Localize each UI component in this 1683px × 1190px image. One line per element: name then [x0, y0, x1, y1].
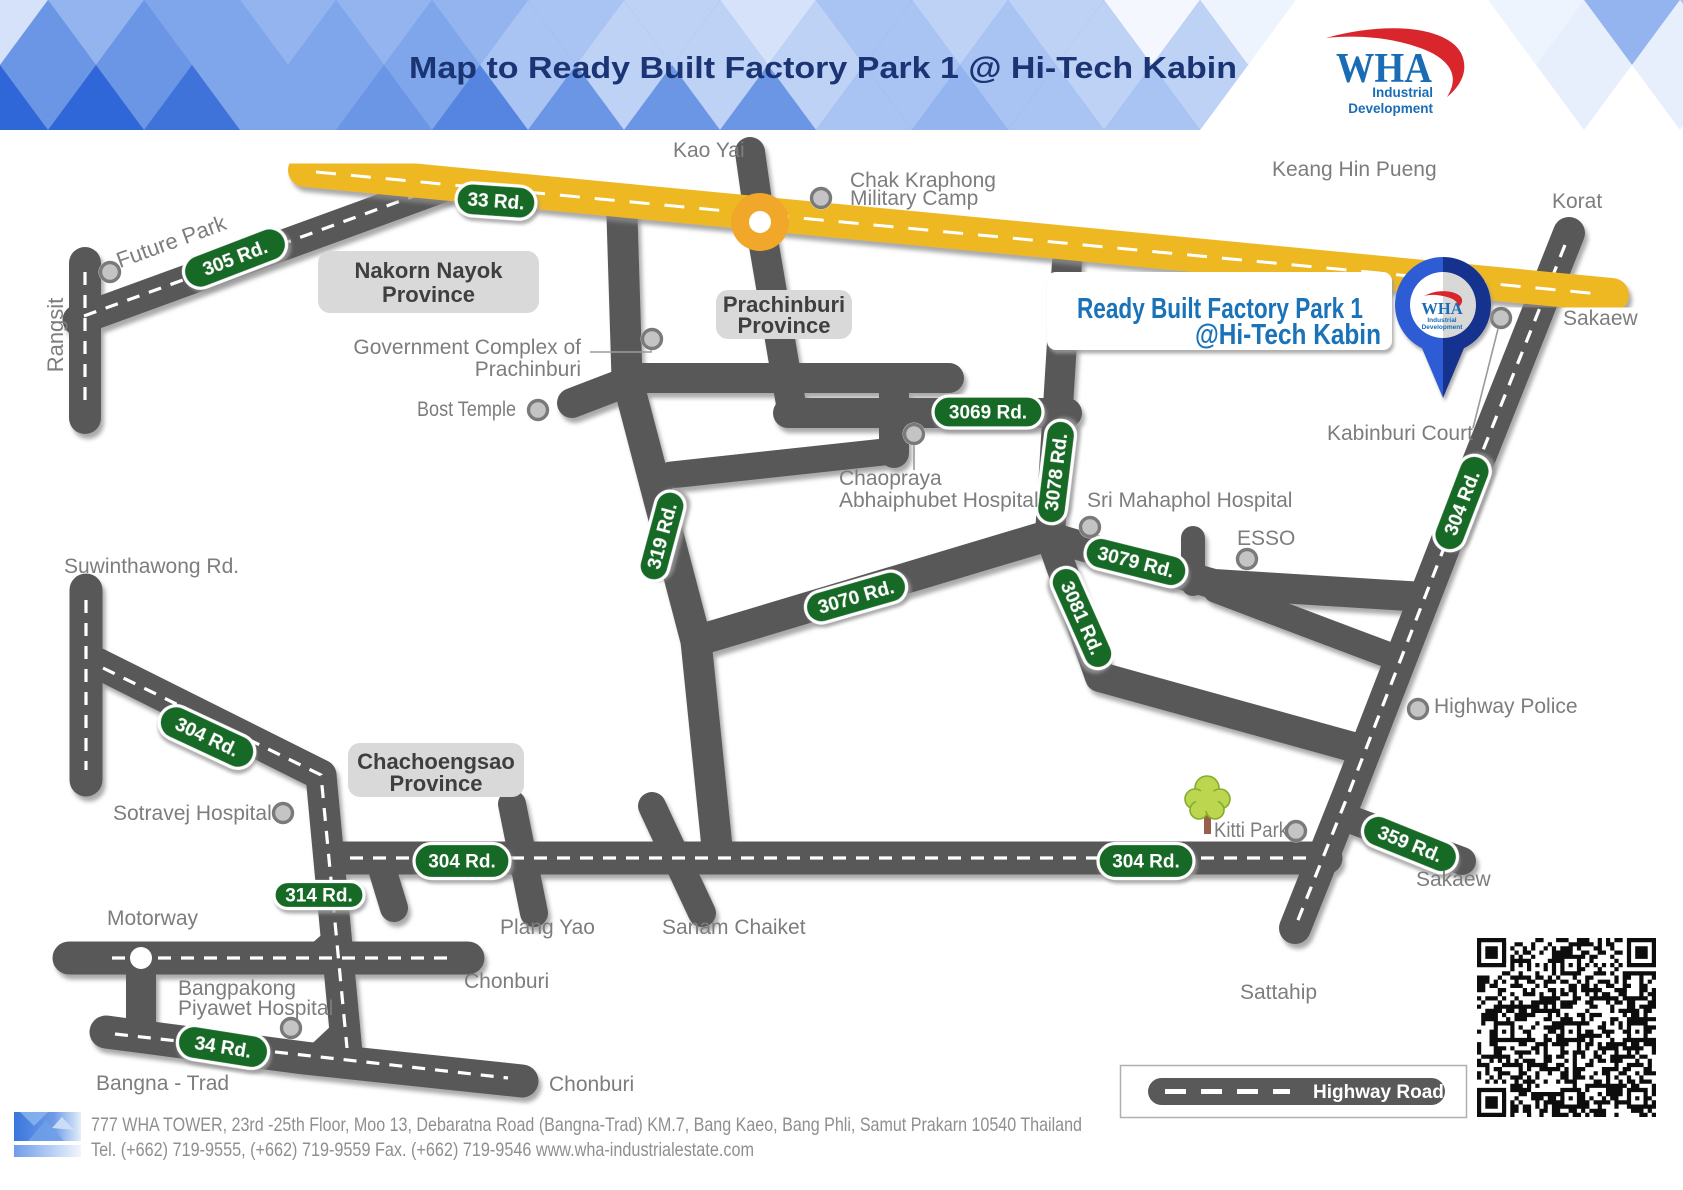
svg-text:Development: Development — [1348, 101, 1433, 116]
svg-text:Map to Ready Built Factory Par: Map to Ready Built Factory Park 1 @ Hi-T… — [409, 50, 1237, 85]
svg-text:Abhaiphubet Hospital: Abhaiphubet Hospital — [839, 489, 1039, 512]
svg-text:Kitti Park: Kitti Park — [1214, 819, 1288, 842]
svg-text:Chonburi: Chonburi — [549, 1073, 634, 1096]
svg-text:Bangna - Trad: Bangna - Trad — [96, 1072, 229, 1095]
svg-text:Highway Road: Highway Road — [1313, 1082, 1444, 1103]
svg-text:Highway Police: Highway Police — [1434, 695, 1578, 718]
svg-text:Government Complex of: Government Complex of — [353, 336, 581, 359]
svg-text:Military Camp: Military Camp — [850, 187, 978, 210]
svg-text:Sakaew: Sakaew — [1563, 307, 1639, 330]
svg-text:Rangsit: Rangsit — [43, 298, 68, 373]
svg-text:Piyawet Hospital: Piyawet Hospital — [178, 997, 333, 1020]
svg-text:Sattahip: Sattahip — [1240, 981, 1317, 1004]
svg-text:Plang Yao: Plang Yao — [500, 916, 595, 939]
svg-text:33 Rd.: 33 Rd. — [467, 190, 525, 215]
svg-text:314 Rd.: 314 Rd. — [285, 886, 353, 907]
svg-text:Sotravej Hospital: Sotravej Hospital — [113, 802, 272, 825]
svg-text:Sakaew: Sakaew — [1416, 868, 1492, 891]
svg-text:Industrial: Industrial — [1372, 85, 1433, 100]
svg-text:3069 Rd.: 3069 Rd. — [949, 403, 1027, 424]
svg-text:Chonburi: Chonburi — [464, 970, 549, 993]
svg-text:Motorway: Motorway — [107, 907, 199, 930]
svg-text:ESSO: ESSO — [1237, 527, 1295, 550]
svg-text:Province: Province — [738, 313, 831, 338]
svg-text:Prachinburi: Prachinburi — [475, 358, 581, 381]
svg-text:Development: Development — [1422, 324, 1464, 331]
svg-text:Sri Mahaphol Hospital: Sri Mahaphol Hospital — [1087, 489, 1292, 512]
svg-text:Sanam Chaiket: Sanam Chaiket — [662, 916, 806, 939]
svg-text:Suwinthawong Rd.: Suwinthawong Rd. — [64, 555, 239, 578]
svg-text:Industrial: Industrial — [1427, 317, 1456, 324]
svg-text:Korat: Korat — [1552, 190, 1602, 213]
svg-text:Nakorn Nayok: Nakorn Nayok — [355, 258, 504, 283]
svg-text:Kabinburi Court: Kabinburi Court — [1327, 422, 1473, 445]
svg-text:WHA: WHA — [1421, 299, 1462, 318]
svg-text:Tel. (+662) 719-9555, (+662) 7: Tel. (+662) 719-9555, (+662) 719-9559 Fa… — [91, 1139, 754, 1161]
svg-text:304 Rd.: 304 Rd. — [428, 852, 496, 873]
svg-text:Keang Hin Pueng: Keang Hin Pueng — [1272, 158, 1437, 181]
svg-text:777 WHA TOWER, 23rd -25th Floo: 777 WHA TOWER, 23rd -25th Floor, Moo 13,… — [91, 1114, 1082, 1136]
svg-text:304 Rd.: 304 Rd. — [1112, 852, 1180, 873]
svg-text:Kao Yai: Kao Yai — [673, 139, 745, 162]
svg-text:Chaopraya: Chaopraya — [839, 467, 942, 490]
svg-text:Province: Province — [390, 771, 483, 796]
svg-text:@Hi-Tech Kabin: @Hi-Tech Kabin — [1195, 319, 1381, 351]
svg-text:Bost Temple: Bost Temple — [417, 398, 516, 421]
svg-text:Province: Province — [382, 282, 475, 307]
